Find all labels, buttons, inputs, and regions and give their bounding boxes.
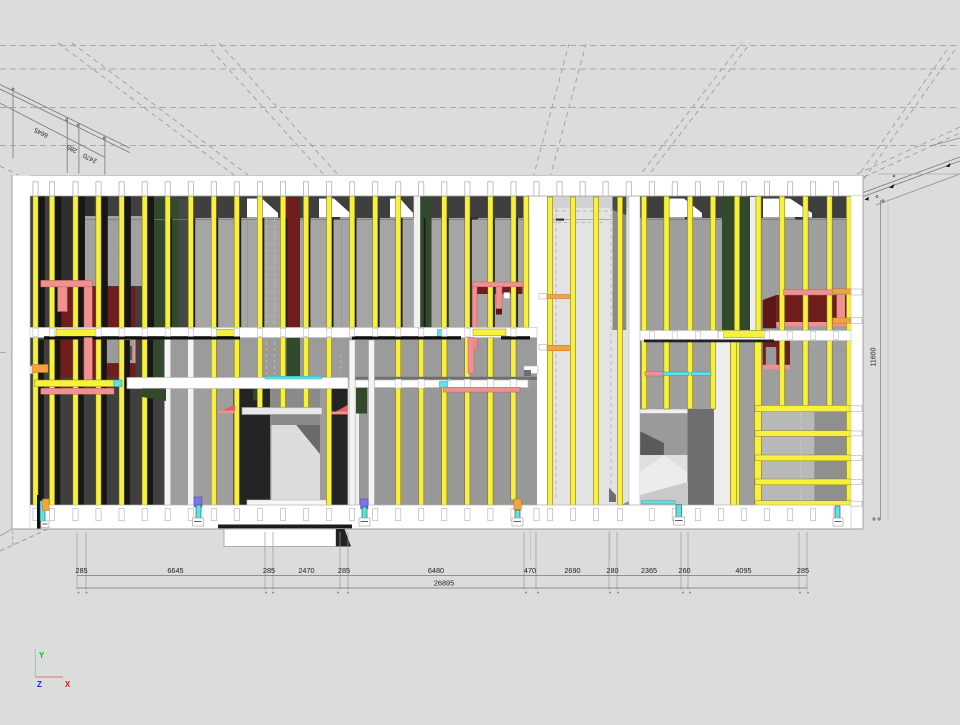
svg-text:Y: Y [39, 651, 45, 660]
svg-text:285: 285 [338, 566, 350, 575]
svg-text:11600: 11600 [871, 347, 878, 366]
svg-text:4095: 4095 [735, 566, 751, 575]
svg-text:280: 280 [606, 566, 618, 575]
svg-text:6645: 6645 [167, 566, 183, 575]
svg-text:6480: 6480 [428, 566, 444, 575]
svg-text:260: 260 [678, 566, 690, 575]
svg-text:285: 285 [75, 566, 87, 575]
svg-text:2470: 2470 [298, 566, 314, 575]
svg-text:285: 285 [797, 566, 809, 575]
svg-text:285: 285 [263, 566, 275, 575]
svg-text:2690: 2690 [564, 566, 580, 575]
svg-text:Z: Z [37, 680, 42, 689]
svg-text:2365: 2365 [641, 566, 657, 575]
svg-text:470: 470 [524, 566, 536, 575]
svg-text:26895: 26895 [434, 579, 454, 588]
svg-text:X: X [65, 680, 71, 689]
